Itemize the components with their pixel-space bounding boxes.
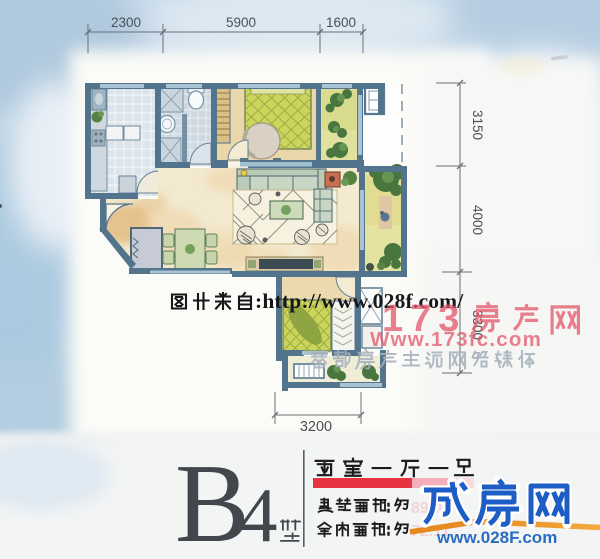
svg-text:2300: 2300 [111,15,141,30]
svg-text:www.028F.com: www.028F.com [436,528,557,547]
svg-text:3200: 3200 [300,419,332,435]
svg-text:4: 4 [239,472,278,558]
svg-text:Www.173fc.com: Www.173fc.com [370,328,542,351]
svg-text:5900: 5900 [226,15,256,30]
svg-text:4000: 4000 [470,205,485,235]
svg-text:3150: 3150 [470,110,485,140]
svg-text:1600: 1600 [326,15,356,30]
